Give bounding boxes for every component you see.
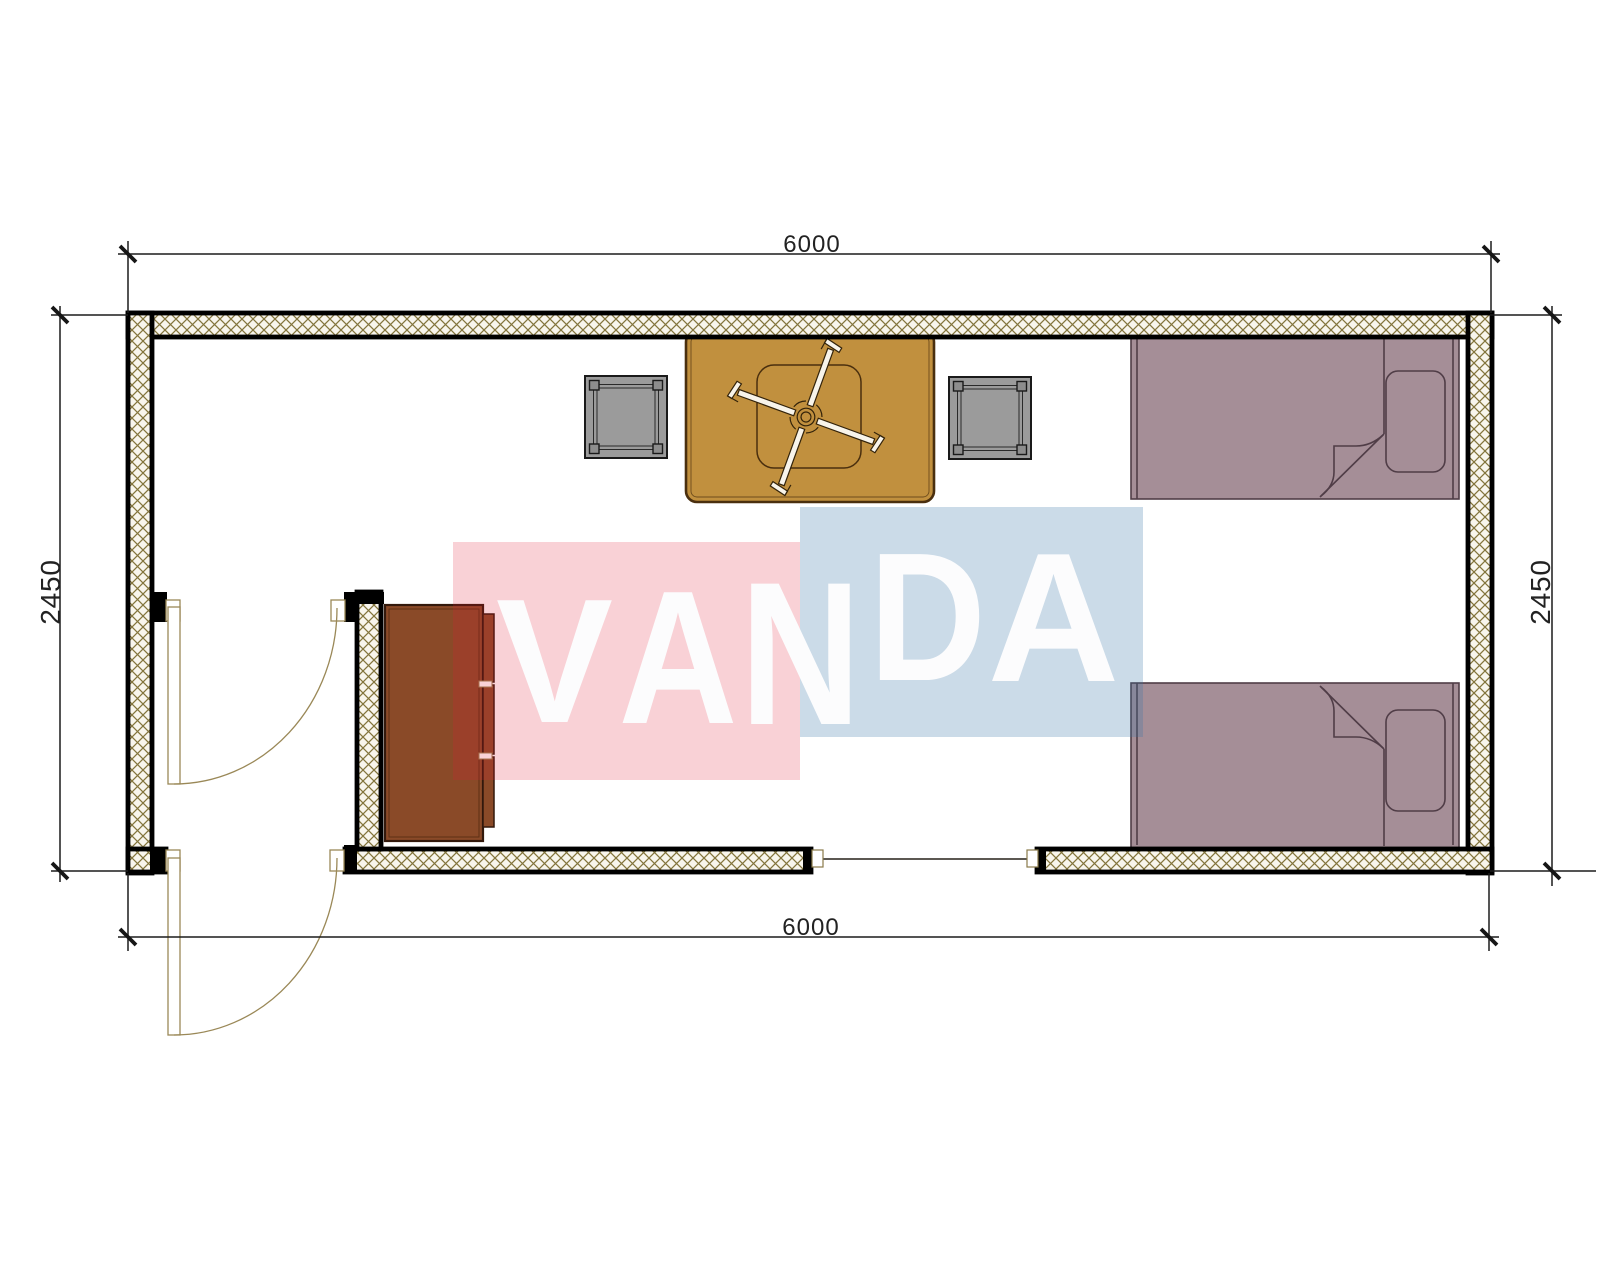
svg-text:D: D <box>869 514 986 719</box>
svg-text:V: V <box>496 562 613 760</box>
svg-text:N: N <box>740 540 861 768</box>
svg-text:2450: 2450 <box>1525 559 1556 625</box>
svg-text:2450: 2450 <box>35 559 66 625</box>
svg-text:A: A <box>988 514 1120 720</box>
svg-text:A: A <box>619 552 738 764</box>
svg-text:6000: 6000 <box>783 231 840 258</box>
svg-text:6000: 6000 <box>782 914 839 941</box>
